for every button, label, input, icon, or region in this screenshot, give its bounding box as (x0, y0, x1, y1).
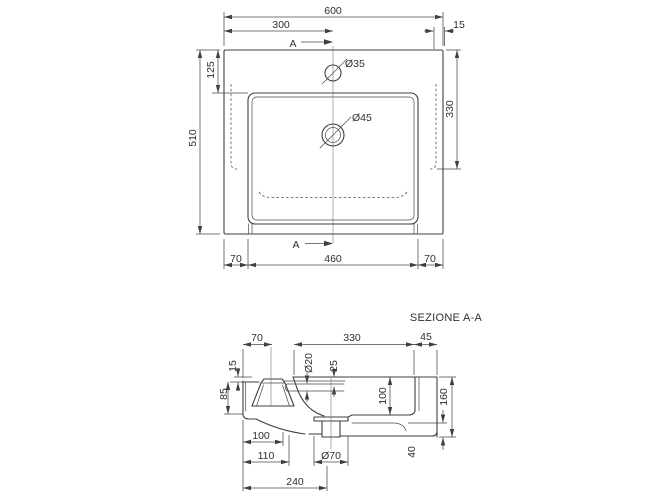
sink-outline (224, 50, 443, 234)
dim-overflow-dia: Ø20 (303, 353, 315, 373)
hidden-edge-right (430, 84, 436, 169)
drain-hole-leader (320, 117, 351, 148)
dim-overflow-offset: 25 (328, 360, 340, 372)
dim-tap-center: 300 (272, 19, 290, 31)
dim-depth-total: 510 (187, 129, 199, 147)
plan-view: 600 300 15 510 125 330 70 460 70 Ø35 Ø45… (187, 5, 465, 269)
dim-ledge-height: 85 (218, 388, 230, 400)
section-profile (243, 347, 437, 449)
dim-drain-flange-dia: Ø70 (321, 450, 341, 462)
dim-height-total: 160 (438, 388, 450, 406)
dim-tap-from-back: 70 (251, 332, 263, 344)
section-title: SEZIONE A-A (410, 312, 483, 324)
dim-basin-width: 460 (324, 253, 342, 265)
dim-edge-inset: 15 (453, 19, 465, 31)
section-letter-bottom: A (292, 239, 299, 251)
dim-front-rim: 45 (420, 331, 432, 343)
washbasin-drawing: 600 300 15 510 125 330 70 460 70 Ø35 Ø45… (0, 0, 667, 500)
dim-bottom-step: 110 (258, 450, 275, 462)
dim-front-left: 70 (230, 253, 242, 265)
dim-ledge-drop: 15 (227, 360, 239, 372)
dim-basin-depth: 100 (377, 387, 389, 405)
dim-width-total: 600 (324, 5, 342, 17)
hidden-edge-left (231, 84, 237, 169)
dim-front-right: 70 (424, 253, 436, 265)
tap-hole-leader (322, 59, 347, 84)
dim-foot-height: 40 (406, 446, 418, 458)
label-drain-dia: Ø45 (352, 112, 372, 124)
section-arrow-bottom (305, 241, 333, 246)
section-letter-top: A (289, 38, 296, 50)
dim-drain-from-back: 240 (286, 476, 304, 488)
section-view: SEZIONE A-A (218, 312, 483, 491)
label-tap-dia: Ø35 (345, 58, 365, 70)
dim-basin-depth-right: 330 (444, 100, 456, 118)
dim-basin-opening: 330 (343, 332, 361, 344)
technical-drawing-page: 600 300 15 510 125 330 70 460 70 Ø35 Ø45… (0, 0, 667, 500)
dim-basin-back-offset: 125 (205, 61, 217, 79)
dim-bottom-flat: 100 (252, 430, 270, 442)
section-arrow-top (301, 39, 333, 44)
